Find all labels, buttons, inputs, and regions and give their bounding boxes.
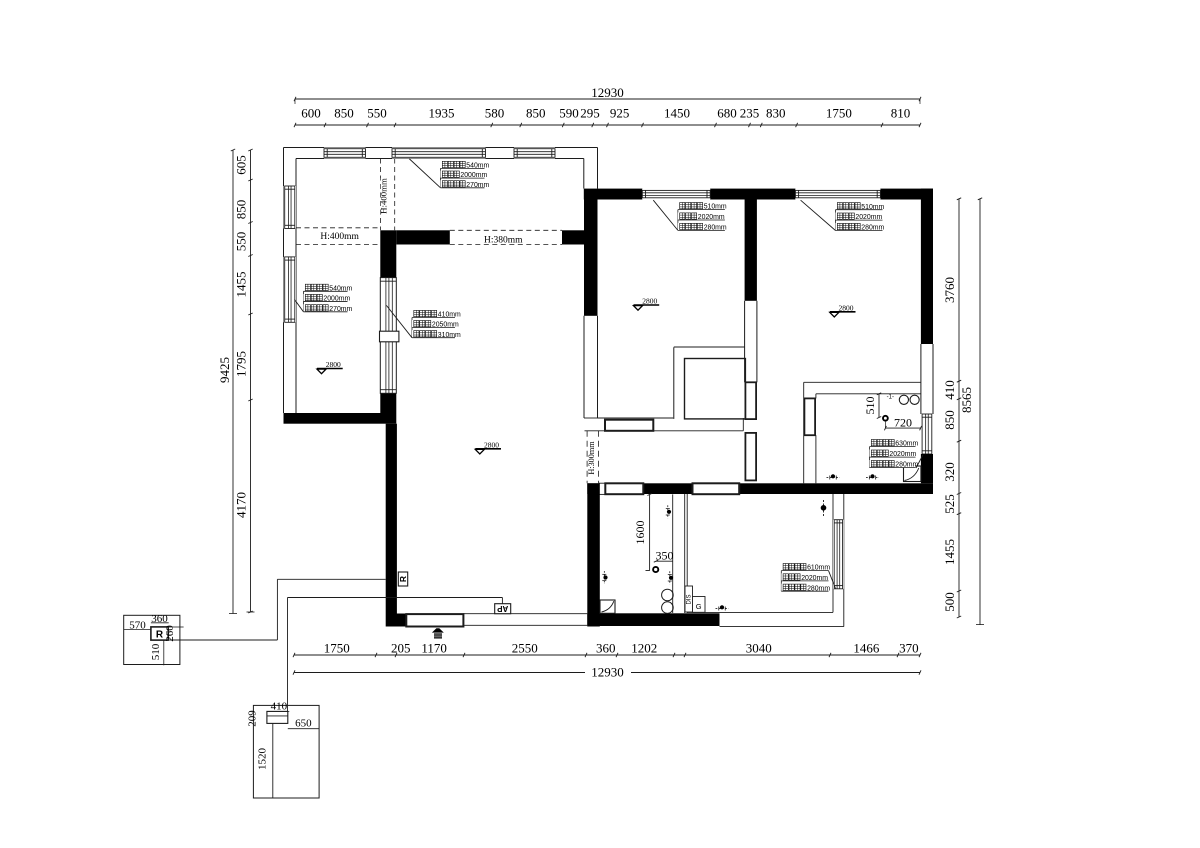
svg-text:550: 550 xyxy=(234,232,249,252)
svg-text:525: 525 xyxy=(942,494,957,514)
svg-text:1750: 1750 xyxy=(826,106,852,121)
svg-text:650: 650 xyxy=(295,718,312,730)
svg-text:830: 830 xyxy=(766,106,786,121)
svg-text:H:400mm: H:400mm xyxy=(379,178,389,214)
svg-text:1455: 1455 xyxy=(234,272,249,298)
svg-text:500: 500 xyxy=(942,592,957,612)
svg-text:2000mm: 2000mm xyxy=(323,296,350,303)
svg-text:R: R xyxy=(156,630,164,641)
svg-text:580: 580 xyxy=(485,106,505,121)
svg-text:1450: 1450 xyxy=(664,106,690,121)
svg-text:1935: 1935 xyxy=(429,106,455,121)
svg-text:280mm: 280mm xyxy=(807,585,830,592)
svg-text:320: 320 xyxy=(942,462,957,482)
svg-text:270mm: 270mm xyxy=(466,182,489,189)
svg-text:850: 850 xyxy=(526,106,546,121)
svg-text:810: 810 xyxy=(891,106,911,121)
svg-text:510: 510 xyxy=(150,643,162,660)
svg-text:H:380mm: H:380mm xyxy=(484,236,523,246)
svg-text:2020mm: 2020mm xyxy=(698,214,725,221)
svg-text:235: 235 xyxy=(740,106,760,121)
svg-text:630mm: 630mm xyxy=(895,441,918,448)
svg-text:510mm: 510mm xyxy=(861,204,884,211)
svg-text:2050mm: 2050mm xyxy=(432,322,459,329)
svg-text:295: 295 xyxy=(580,106,600,121)
svg-text:280mm: 280mm xyxy=(895,462,918,469)
svg-text:590: 590 xyxy=(559,106,579,121)
svg-text:720: 720 xyxy=(894,415,912,429)
svg-text:510: 510 xyxy=(863,397,877,415)
svg-text:1202: 1202 xyxy=(631,641,657,656)
svg-text:-1-: -1- xyxy=(887,395,894,401)
svg-text:2800: 2800 xyxy=(326,360,341,369)
svg-text:410: 410 xyxy=(271,701,288,713)
svg-text:310mm: 310mm xyxy=(438,332,461,339)
svg-text:510mm: 510mm xyxy=(704,204,727,211)
svg-text:3040: 3040 xyxy=(746,641,772,656)
svg-text:680: 680 xyxy=(717,106,737,121)
svg-text:550: 550 xyxy=(367,106,387,121)
svg-text:2020mm: 2020mm xyxy=(801,575,828,582)
svg-text:2020mm: 2020mm xyxy=(889,451,916,458)
svg-text:3760: 3760 xyxy=(942,277,957,303)
svg-text:1455: 1455 xyxy=(942,539,957,565)
svg-text:9425: 9425 xyxy=(217,357,232,383)
svg-text:540mm: 540mm xyxy=(466,163,489,170)
svg-text:850: 850 xyxy=(234,200,249,220)
svg-text:850: 850 xyxy=(942,410,957,430)
svg-text:AP: AP xyxy=(496,604,508,613)
svg-text:610mm: 610mm xyxy=(807,565,830,572)
svg-text:2800: 2800 xyxy=(642,297,657,306)
svg-text:12930: 12930 xyxy=(591,665,624,680)
svg-text:4170: 4170 xyxy=(234,492,249,518)
svg-text:280mm: 280mm xyxy=(704,225,727,232)
svg-text:925: 925 xyxy=(610,106,630,121)
svg-text:1795: 1795 xyxy=(234,351,249,377)
svg-text:G: G xyxy=(696,602,702,611)
svg-text:360: 360 xyxy=(596,641,616,656)
svg-text:1170: 1170 xyxy=(421,641,447,656)
svg-text:2000mm: 2000mm xyxy=(460,172,487,179)
svg-text:1600: 1600 xyxy=(633,521,647,545)
svg-text:370: 370 xyxy=(899,641,919,656)
svg-text:H:300mm: H:300mm xyxy=(587,441,596,475)
svg-text:R: R xyxy=(398,576,408,582)
svg-text:H:400mm: H:400mm xyxy=(320,232,359,242)
svg-text:2800: 2800 xyxy=(839,303,854,312)
svg-text:270mm: 270mm xyxy=(329,306,352,313)
svg-text:410: 410 xyxy=(942,380,957,400)
svg-text:540mm: 540mm xyxy=(329,285,352,292)
svg-text:410mm: 410mm xyxy=(438,312,461,319)
svg-text:360: 360 xyxy=(151,613,168,625)
svg-text:209: 209 xyxy=(247,710,259,727)
svg-text:2800: 2800 xyxy=(484,440,499,449)
svg-text:12930: 12930 xyxy=(591,85,624,100)
svg-text:2550: 2550 xyxy=(512,641,538,656)
svg-text:DIS: DIS xyxy=(687,594,693,604)
svg-text:600: 600 xyxy=(301,106,321,121)
svg-text:205: 205 xyxy=(391,641,411,656)
svg-text:1750: 1750 xyxy=(324,641,350,656)
svg-text:850: 850 xyxy=(334,106,354,121)
svg-text:2020mm: 2020mm xyxy=(855,214,882,221)
svg-text:280mm: 280mm xyxy=(861,225,884,232)
svg-text:8565: 8565 xyxy=(959,387,974,413)
svg-text:1520: 1520 xyxy=(257,748,269,771)
svg-text:605: 605 xyxy=(234,155,249,175)
svg-text:1466: 1466 xyxy=(853,641,880,656)
